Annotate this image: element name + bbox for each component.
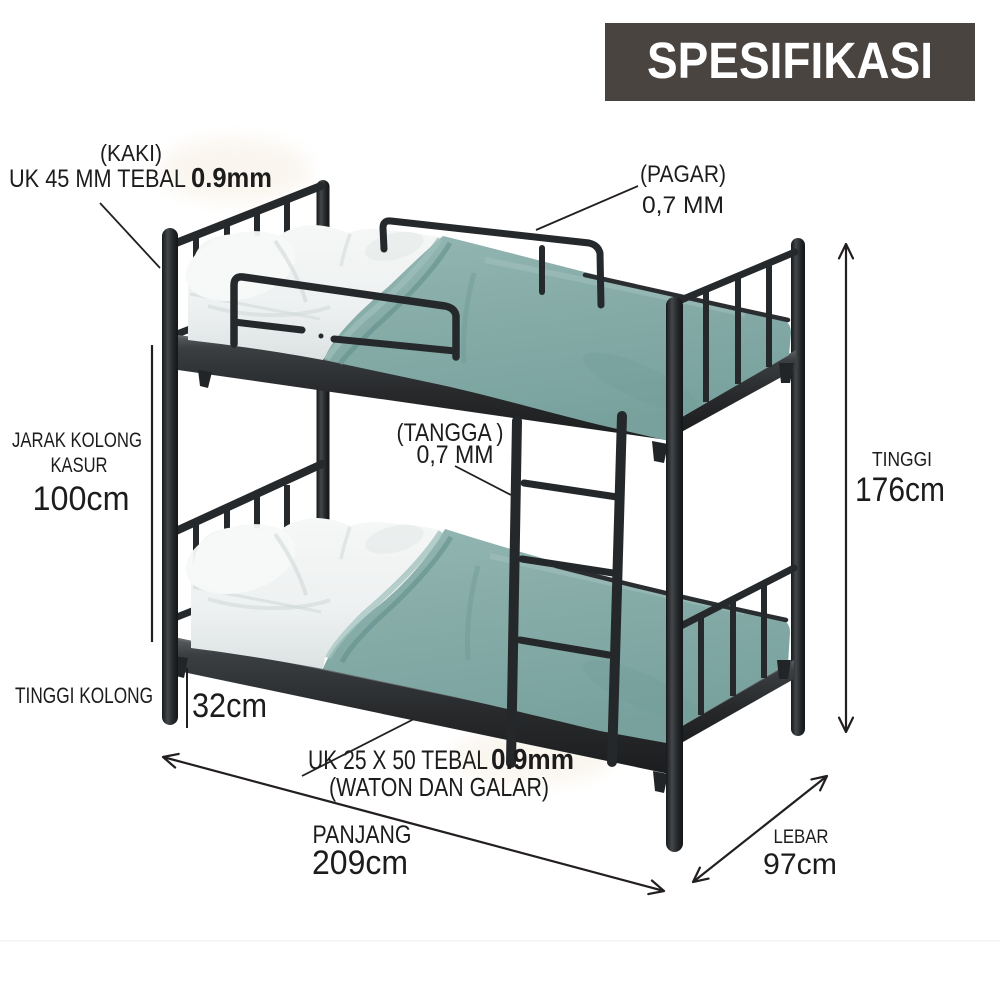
svg-text:TINGGI KOLONG: TINGGI KOLONG	[15, 683, 153, 708]
svg-text:97cm: 97cm	[763, 848, 837, 881]
svg-text:(PAGAR): (PAGAR)	[640, 161, 726, 188]
svg-text:LEBAR: LEBAR	[774, 827, 829, 848]
svg-text:JARAK KOLONG: JARAK KOLONG	[12, 429, 142, 452]
svg-text:UK 45 MM TEBAL: UK 45 MM TEBAL	[9, 165, 186, 193]
svg-text:(KAKI): (KAKI)	[100, 140, 162, 166]
svg-text:0.9mm: 0.9mm	[191, 162, 272, 193]
svg-text:KASUR: KASUR	[51, 454, 108, 477]
svg-text:SPESIFIKASI: SPESIFIKASI	[647, 32, 933, 89]
svg-text:0,7 MM: 0,7 MM	[417, 441, 494, 469]
svg-text:TINGGI: TINGGI	[872, 448, 932, 471]
svg-text:(WATON DAN GALAR): (WATON DAN GALAR)	[329, 772, 549, 802]
svg-text:0,7 MM: 0,7 MM	[642, 192, 724, 219]
svg-text:176cm: 176cm	[855, 471, 945, 509]
svg-text:209cm: 209cm	[312, 844, 408, 882]
svg-text:100cm: 100cm	[33, 480, 130, 518]
svg-text:32cm: 32cm	[192, 687, 267, 725]
